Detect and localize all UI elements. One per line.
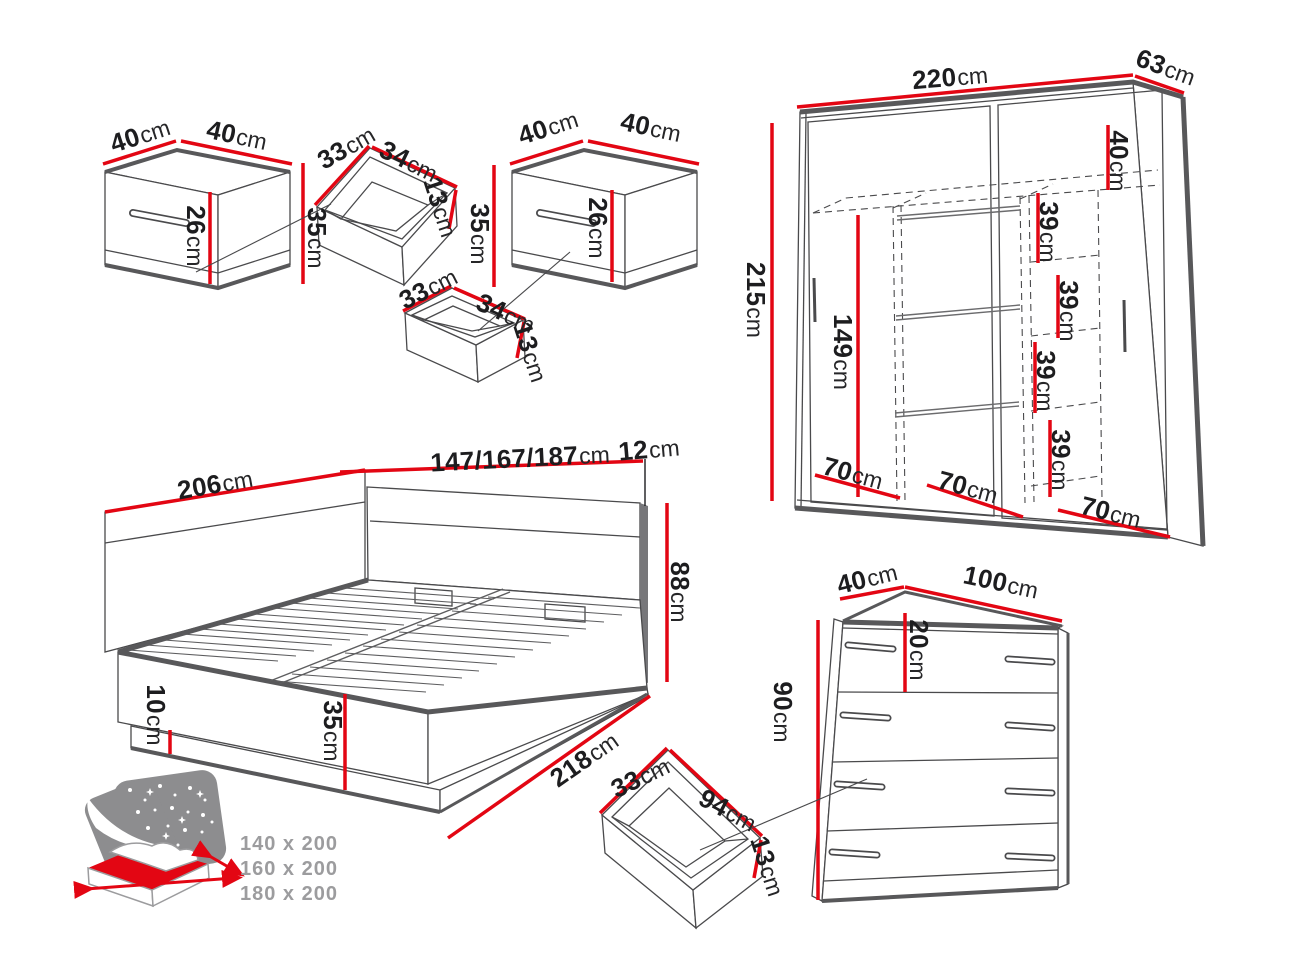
dim-nightstand2-height: 35cm [467, 203, 493, 264]
bed-size-icon [81, 768, 237, 906]
dim-chest-height: 90cm [770, 681, 796, 742]
dim-nightstand-front-height: 26cm [183, 205, 209, 266]
furniture-dimensions-diagram: 40cm 40cm 26cm 35cm 33cm 34cm 13cm 40cm … [0, 0, 1307, 980]
dim-wardrobe-inner-height: 149cm [830, 314, 856, 390]
dim-wardrobe-shelf-gap-1: 39cm [1036, 201, 1062, 262]
dim-wardrobe-top-gap: 40cm [1106, 130, 1132, 191]
dim-wardrobe-shelf-gap-2: 39cm [1056, 280, 1082, 341]
dim-chest-drawer-front: 20cm [906, 619, 932, 680]
dim-wardrobe-height: 215cm [743, 262, 769, 338]
dim-bed-headboard-thickness: 12cm [617, 433, 680, 464]
dim-nightstand-height: 35cm [304, 207, 330, 268]
mattress-size-option: 160 x 200 [240, 859, 338, 879]
dim-bed-headboard-height: 88cm [667, 561, 693, 622]
dim-bed-frame-height: 35cm [320, 700, 346, 761]
dim-bed-plinth-height: 10cm [143, 684, 169, 745]
dim-nightstand2-front-height: 26cm [585, 197, 611, 258]
mattress-size-option: 180 x 200 [240, 884, 338, 904]
dim-wardrobe-shelf-gap-3: 39cm [1033, 350, 1059, 411]
mattress-size-option: 140 x 200 [240, 834, 338, 854]
dim-wardrobe-width: 220cm [911, 61, 989, 94]
chest-of-drawers [812, 592, 1068, 901]
mattress-sizes-list: 140 x 200 160 x 200 180 x 200 [240, 834, 338, 909]
dim-wardrobe-shelf-gap-4: 39cm [1048, 429, 1074, 490]
